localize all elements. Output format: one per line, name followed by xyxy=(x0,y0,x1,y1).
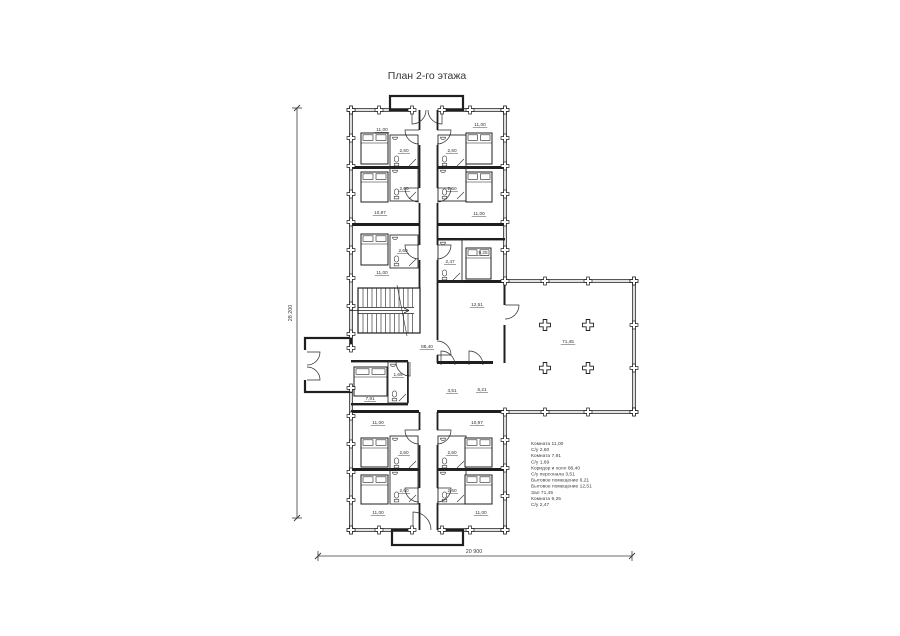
log-cross-mark xyxy=(501,106,509,114)
partition-wall xyxy=(437,468,505,471)
hall-columns xyxy=(540,320,594,374)
toilet-tank-icon xyxy=(442,277,447,280)
bathroom-box xyxy=(390,168,418,201)
toilet-tank-icon xyxy=(442,163,447,166)
shower-corner-icon xyxy=(409,159,416,166)
bed xyxy=(465,475,492,504)
room-lower-left-label: 7,91 xyxy=(365,396,375,401)
corridor-wall xyxy=(437,503,439,530)
dimension-left: 28 200 xyxy=(288,105,302,521)
toilet-icon xyxy=(394,458,399,464)
log-cross-mark xyxy=(541,277,549,285)
log-cross-mark xyxy=(347,134,355,142)
log-cross-mark xyxy=(630,364,638,372)
log-cross-mark xyxy=(630,277,638,285)
staff-wc-label: 3,51 xyxy=(447,388,457,393)
sink-icon xyxy=(441,472,446,475)
partition-wall xyxy=(351,166,419,169)
room-top-right-1-label: 11,00 xyxy=(474,122,486,127)
log-cross-mark xyxy=(375,106,383,114)
bath-bottom-right-1-label: 2,60 xyxy=(447,450,457,455)
corridor-wall xyxy=(437,110,439,130)
shower-corner-icon xyxy=(453,273,460,280)
log-cross-mark xyxy=(466,106,474,114)
corridor-wall xyxy=(419,445,421,488)
shower-corner-icon xyxy=(457,461,464,468)
log-cross-mark xyxy=(375,526,383,534)
log-cross-mark xyxy=(501,492,509,500)
room-utility-12-label: 12,51 xyxy=(471,302,483,307)
corridor-wall xyxy=(419,503,421,530)
log-cross-mark xyxy=(347,106,355,114)
dimension-vertical-label: 28 200 xyxy=(288,305,294,322)
log-cross-mark xyxy=(584,277,592,285)
log-cross-mark xyxy=(630,321,638,329)
room-top-right-2-label: 11,00 xyxy=(473,211,485,216)
toilet-tank-icon xyxy=(394,196,399,199)
shower-corner-icon xyxy=(457,495,464,502)
log-cross-mark xyxy=(501,526,509,534)
log-cross-mark xyxy=(501,134,509,142)
partition-wall xyxy=(351,468,419,471)
log-cross-mark xyxy=(501,190,509,198)
page: План 2-го этажа 11,002,6011,002,6010,972… xyxy=(0,0,900,636)
sink-icon xyxy=(393,237,398,240)
shower-corner-icon xyxy=(457,159,464,166)
bed xyxy=(465,438,492,467)
room-top-left-2-label: 10,97 xyxy=(374,210,386,215)
bed xyxy=(361,133,388,164)
hall-column xyxy=(583,363,594,374)
bathroom-box xyxy=(438,168,466,201)
door-arc xyxy=(405,430,419,444)
bed xyxy=(361,172,388,202)
sink-icon xyxy=(393,137,398,140)
room-utility-6-label: 6,21 xyxy=(477,387,487,392)
log-cross-mark xyxy=(501,408,509,416)
corridor-wall xyxy=(419,145,421,188)
legend-line-8: Зал 71,45 xyxy=(531,490,553,496)
bath-bottom-right-2-label: 2,60 xyxy=(447,488,457,493)
dimension-horizontal-label: 20 900 xyxy=(466,549,483,555)
door-arc xyxy=(437,341,451,355)
legend-line-4: Коридор и холл 88,40 xyxy=(531,465,580,471)
corridor-wall xyxy=(437,355,439,363)
shower-corner-icon xyxy=(409,192,416,199)
toilet-icon xyxy=(394,492,399,498)
corridor-wall xyxy=(419,412,421,430)
legend-line-10: С/у 2,47 xyxy=(531,502,549,508)
partition-wall xyxy=(437,223,505,226)
bath-bottom-left-1-label: 2,60 xyxy=(399,450,409,455)
legend-line-9: Комната 9,25 xyxy=(531,496,561,502)
bed xyxy=(361,475,388,504)
entrance-vestibule xyxy=(305,338,351,392)
partition-wall xyxy=(351,223,419,226)
bed xyxy=(466,172,492,202)
page-title: План 2-го этажа xyxy=(388,70,467,82)
sink-icon xyxy=(441,170,446,173)
corridor-wall xyxy=(419,203,421,245)
corridor-wall xyxy=(437,412,439,430)
bath-top-right-2-label: 2,60 xyxy=(447,186,457,191)
corridor-wall xyxy=(419,110,421,130)
toilet-tank-icon xyxy=(394,499,399,502)
shower-corner-icon xyxy=(399,394,406,401)
bath-top-left-1-label: 2,60 xyxy=(399,148,409,153)
bath-lower-left-label: 1,69 xyxy=(393,372,403,377)
log-cross-mark xyxy=(501,246,509,254)
partition-wall xyxy=(437,361,493,364)
legend-line-3: С/у 1,69 xyxy=(531,459,549,465)
corridor-walls xyxy=(419,110,439,530)
room-bottom-left-2-label: 11,00 xyxy=(372,510,384,515)
toilet-icon xyxy=(442,189,447,195)
log-cross-mark xyxy=(466,526,474,534)
log-cross-mark xyxy=(347,526,355,534)
door-arc xyxy=(437,430,451,444)
sink-icon xyxy=(393,472,398,475)
toilet-tank-icon xyxy=(394,263,399,266)
log-cross-mark xyxy=(501,436,509,444)
toilet-icon xyxy=(394,256,399,262)
sink-icon xyxy=(393,170,398,173)
toilet-icon xyxy=(394,189,399,195)
log-cross-mark xyxy=(347,302,355,310)
toilet-tank-icon xyxy=(394,163,399,166)
partition-wall xyxy=(351,410,419,413)
shower-corner-icon xyxy=(409,259,416,266)
toilet-icon xyxy=(394,156,399,162)
room-bottom-right-1-label: 10,97 xyxy=(471,420,483,425)
bathroom-box xyxy=(388,362,408,403)
log-cross-mark xyxy=(347,246,355,254)
log-cross-mark xyxy=(347,330,355,338)
toilet-icon xyxy=(442,270,447,276)
staircase xyxy=(350,285,420,336)
toilet-icon xyxy=(442,492,447,498)
sink-icon xyxy=(441,242,446,245)
shower-corner-icon xyxy=(409,461,416,468)
bath-bottom-left-2-label: 2,60 xyxy=(399,488,409,493)
corridor-hall-label: 88,40 xyxy=(421,344,433,349)
hall-column xyxy=(540,363,551,374)
room-bottom-left-1-label: 11,00 xyxy=(372,420,384,425)
floor-plan-svg: План 2-го этажа 11,002,6011,002,6010,972… xyxy=(0,0,900,636)
room-top-left-1-label: 11,00 xyxy=(376,127,388,132)
log-cross-mark xyxy=(347,412,355,420)
legend-line-1: С/у 2,60 xyxy=(531,447,549,453)
bath-top-right-1-label: 2,60 xyxy=(447,148,457,153)
bath-staff-label: 2,47 xyxy=(445,259,455,264)
partition-wall xyxy=(504,282,506,305)
hall-label: 71,45 xyxy=(562,339,574,344)
log-cross-mark xyxy=(347,496,355,504)
log-cross-mark xyxy=(584,408,592,416)
sink-icon xyxy=(441,438,446,441)
sink-icon xyxy=(393,438,398,441)
bed xyxy=(361,438,388,467)
legend-area-list: Комната 11,00С/у 2,60Комната 7,91С/у 1,6… xyxy=(531,441,592,508)
door-arc xyxy=(505,305,519,319)
hall-column xyxy=(540,320,551,331)
partition-wall xyxy=(504,325,506,363)
sink-icon xyxy=(441,137,446,140)
sink-icon xyxy=(391,364,396,367)
room-top-left-3-label: 11,00 xyxy=(376,270,388,275)
bathroom-box xyxy=(390,470,418,504)
bath-top-left-2-label: 2,60 xyxy=(399,186,409,191)
log-cross-mark xyxy=(501,277,509,285)
bath-top-left-3-label: 2,60 xyxy=(398,248,408,253)
log-cross-mark xyxy=(541,408,549,416)
dimension-bottom: 20 900 xyxy=(315,549,635,561)
legend-line-0: Комната 11,00 xyxy=(531,441,564,447)
door-arc xyxy=(405,130,419,144)
hall-column xyxy=(583,320,594,331)
bed xyxy=(354,367,387,396)
bathroom-box xyxy=(438,470,466,504)
corridor-wall xyxy=(419,260,421,288)
toilet-tank-icon xyxy=(392,398,397,401)
bed xyxy=(361,234,388,265)
toilet-tank-icon xyxy=(442,465,447,468)
corridor-wall xyxy=(437,203,439,245)
partition-wall xyxy=(437,410,505,413)
legend-line-7: Бытовое помещение 12,51 xyxy=(531,484,592,490)
toilet-icon xyxy=(442,156,447,162)
log-cross-mark xyxy=(347,274,355,282)
toilet-icon xyxy=(442,458,447,464)
toilet-tank-icon xyxy=(394,465,399,468)
door-arc xyxy=(437,245,451,259)
legend-line-6: Бытовое помещение 6,21 xyxy=(531,478,589,484)
door-arc xyxy=(428,110,442,124)
legend-line-2: Комната 7,91 xyxy=(531,453,561,459)
bed xyxy=(466,133,492,164)
legend-line-5: С/у персонала 3,51 xyxy=(531,472,575,478)
shower-corner-icon xyxy=(457,192,464,199)
partition-wall xyxy=(437,166,505,169)
partition-wall xyxy=(437,280,505,283)
room-bottom-right-2-label: 11,00 xyxy=(475,510,487,515)
log-cross-mark xyxy=(347,190,355,198)
log-cross-mark xyxy=(630,408,638,416)
room-staff-label: 9,25 xyxy=(478,250,488,255)
toilet-icon xyxy=(392,391,397,397)
log-cross-mark xyxy=(347,440,355,448)
